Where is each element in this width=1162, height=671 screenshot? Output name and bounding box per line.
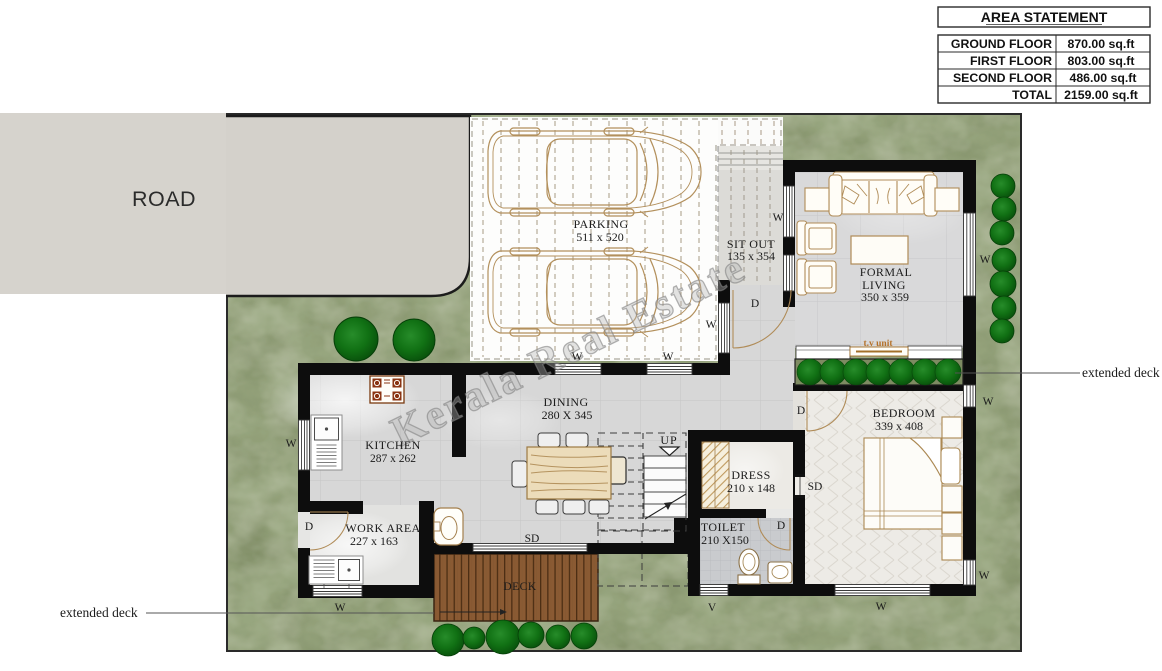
- svg-text:803.00 sq.ft: 803.00 sq.ft: [1068, 54, 1135, 68]
- svg-text:W: W: [663, 351, 674, 363]
- svg-text:280 X 345: 280 X 345: [542, 408, 593, 422]
- svg-text:2159.00 sq.ft: 2159.00 sq.ft: [1064, 88, 1138, 102]
- svg-text:BEDROOM: BEDROOM: [873, 406, 936, 420]
- svg-text:KITCHEN: KITCHEN: [365, 438, 420, 452]
- svg-text:UP: UP: [660, 433, 677, 447]
- svg-text:227 x 163: 227 x 163: [350, 534, 398, 548]
- svg-text:TOILET: TOILET: [701, 520, 745, 534]
- svg-text:D: D: [305, 521, 313, 533]
- svg-text:350 x 359: 350 x 359: [861, 290, 909, 304]
- svg-text:FORMAL: FORMAL: [860, 265, 912, 279]
- svg-text:DECK: DECK: [503, 581, 537, 593]
- svg-text:W: W: [876, 601, 887, 613]
- svg-text:W: W: [335, 602, 346, 614]
- svg-text:W: W: [980, 254, 991, 266]
- svg-text:486.00 sq.ft: 486.00 sq.ft: [1070, 71, 1137, 85]
- svg-text:287 x 262: 287 x 262: [370, 453, 416, 465]
- svg-text:TOTAL: TOTAL: [1012, 88, 1052, 102]
- svg-text:339 x 408: 339 x 408: [875, 419, 923, 433]
- svg-text:D: D: [777, 520, 785, 532]
- svg-text:GROUND FLOOR: GROUND FLOOR: [951, 37, 1052, 51]
- svg-text:extended deck: extended deck: [1082, 365, 1160, 380]
- svg-text:210 x 148: 210 x 148: [727, 481, 775, 495]
- svg-text:W: W: [286, 438, 297, 450]
- svg-text:511 x 520: 511 x 520: [576, 230, 624, 244]
- svg-text:SECOND FLOOR: SECOND FLOOR: [953, 71, 1052, 85]
- svg-text:ROAD: ROAD: [132, 187, 196, 211]
- svg-text:AREA STATEMENT: AREA STATEMENT: [981, 9, 1108, 25]
- svg-text:SD: SD: [525, 533, 540, 545]
- svg-text:135 x 354: 135 x 354: [727, 249, 775, 263]
- svg-text:DINING: DINING: [543, 395, 588, 409]
- svg-text:SD: SD: [808, 481, 823, 493]
- svg-text:W: W: [572, 351, 583, 363]
- svg-text:D: D: [751, 298, 759, 310]
- svg-text:FIRST FLOOR: FIRST FLOOR: [970, 54, 1052, 68]
- svg-text:PARKING: PARKING: [573, 217, 628, 231]
- svg-text:t.v unit: t.v unit: [863, 339, 893, 349]
- svg-text:WORK AREA: WORK AREA: [345, 521, 420, 535]
- svg-text:extended deck: extended deck: [60, 605, 138, 620]
- svg-text:210 X150: 210 X150: [701, 533, 749, 547]
- svg-text:D: D: [797, 405, 805, 417]
- svg-text:W: W: [706, 319, 717, 331]
- svg-text:W: W: [983, 396, 994, 408]
- svg-text:870.00 sq.ft: 870.00 sq.ft: [1068, 37, 1135, 51]
- svg-text:DRESS: DRESS: [731, 468, 770, 482]
- svg-text:W: W: [979, 570, 990, 582]
- svg-text:V: V: [708, 602, 717, 614]
- svg-text:W: W: [773, 212, 784, 224]
